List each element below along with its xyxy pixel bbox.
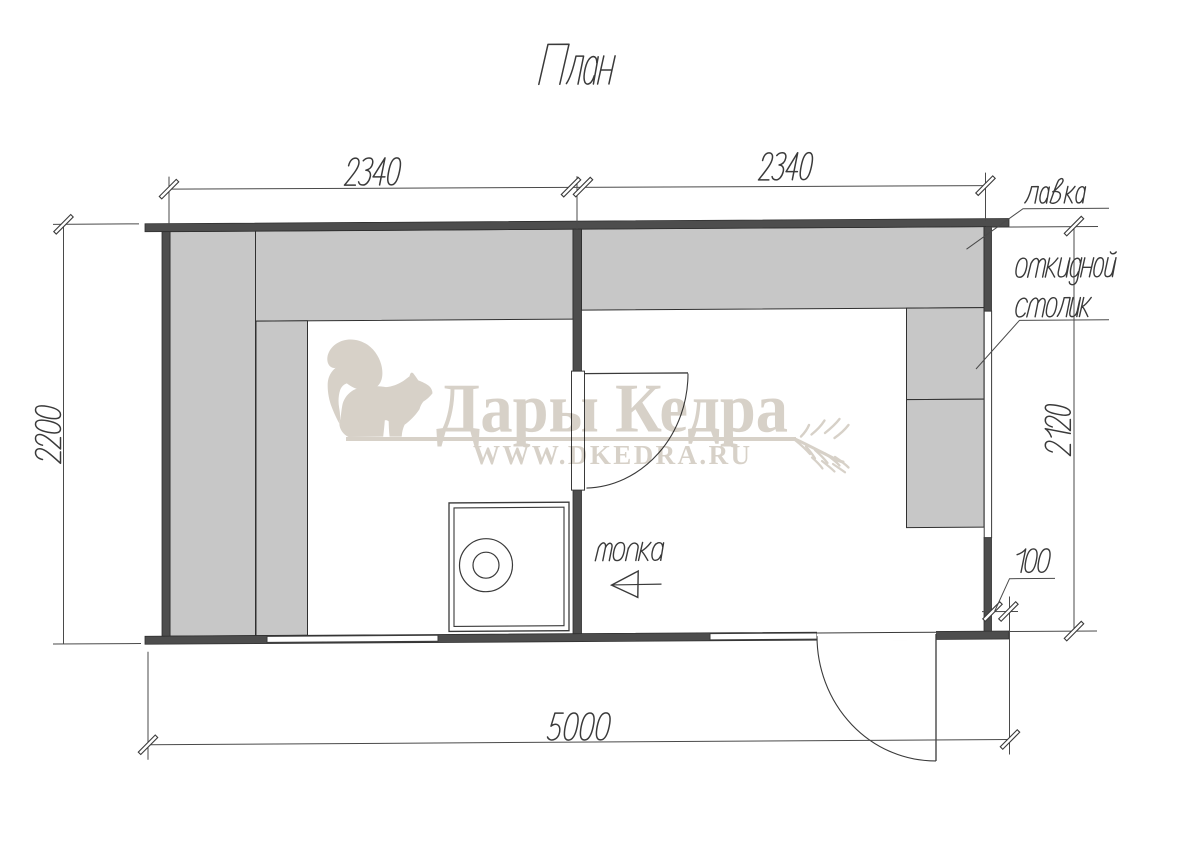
svg-text:Дары Кедра: Дары Кедра xyxy=(436,371,788,448)
